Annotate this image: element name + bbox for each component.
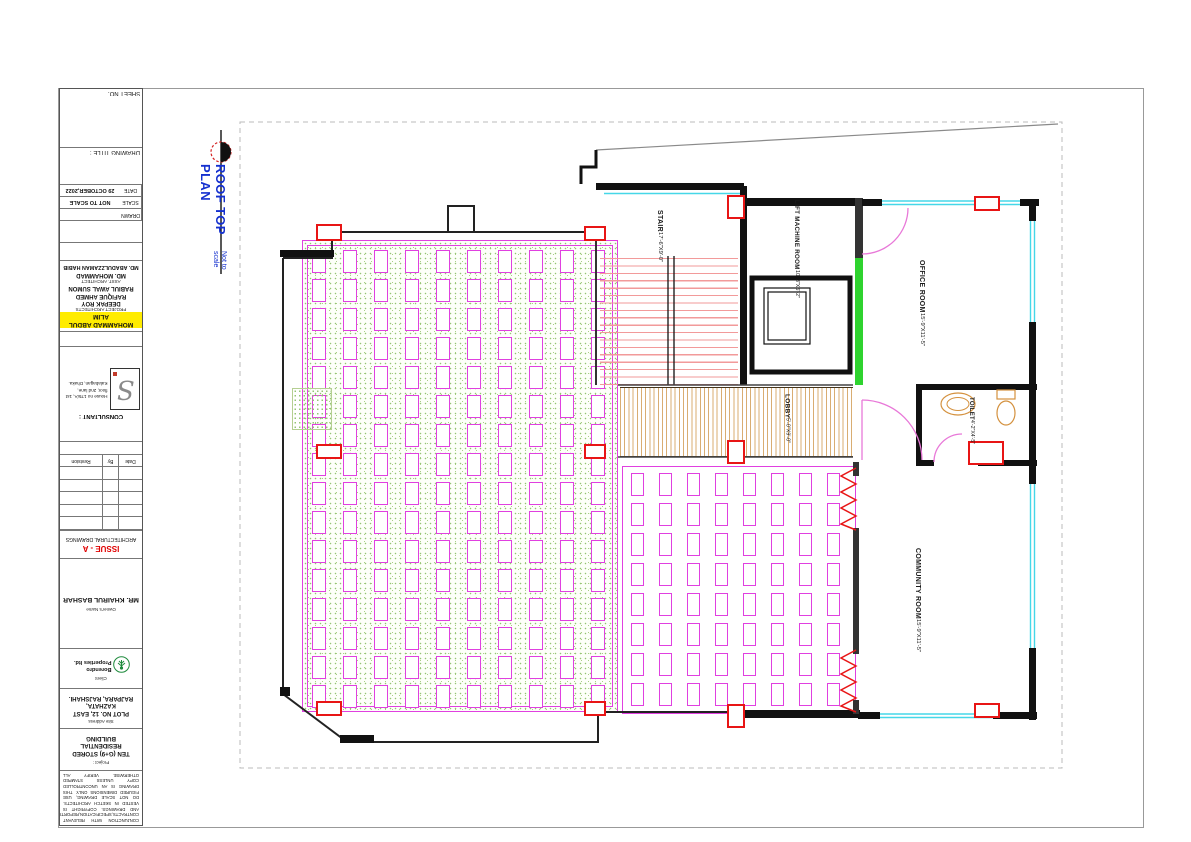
plan-title-text: ROOF TOP PLAN [197,164,227,251]
roof-grid-cell [591,540,605,563]
roof-grid-cell [405,308,419,331]
room-name: STAIR [655,210,663,232]
column-marker [584,226,606,241]
roof-grid-cell [343,482,357,505]
revision-header-row: Date By Revision [60,455,142,468]
project-label: Project : [93,759,110,765]
roof-grid-cell [498,685,512,708]
scale-value: NOT TO SCALE [60,197,120,208]
roof-grid-cell [467,337,481,360]
roof-grid-cell [467,511,481,534]
column-marker [727,704,745,728]
roof-grid-cell [467,395,481,418]
roof-grid-cell [560,308,574,331]
roof-grid-cell [343,627,357,650]
project-name-line2: BUILDING [86,734,116,742]
roof-grid-cell [529,656,543,679]
roof-grid-cell [374,685,388,708]
roof-grid-cell [743,533,756,556]
roof-grid-cell [591,511,605,534]
roof-grid-cell [312,511,326,534]
roof-grid-cell [799,533,812,556]
revision-empty-row [60,493,142,506]
roof-grid-cell [771,563,784,586]
roof-grid-cell [498,540,512,563]
roof-grid-cell [405,453,419,476]
column-marker [974,196,1000,211]
site-label: Site Address [88,718,113,724]
roof-grid-cell [631,503,644,526]
date-value: 29 OCTOBER,2022 [60,185,120,196]
room-dim: 15'-9"X11'-5" [913,619,921,652]
column-marker [584,701,606,716]
roof-grid-cell [659,593,672,616]
roof-grid-cell [405,540,419,563]
roof-grid-cell [715,683,728,706]
roof-grid-cell [405,627,419,650]
roof-grid-cell [560,395,574,418]
asst-architect-label: ASST. ARCHITECT [81,278,120,284]
client-logo-tree-icon [114,656,131,673]
roof-grid-cell [343,250,357,273]
roof-grid-cell [312,598,326,621]
roof-grid-cell [436,540,450,563]
roof-grid-cell [799,623,812,646]
roof-grid-cell [374,540,388,563]
project-name-line1: TEN (G+9) STORED RESIDENTIAL [60,742,142,758]
roof-grid-cell [631,683,644,706]
roof-grid-cell [560,627,574,650]
roof-grid-cell [687,473,700,496]
room-dim: 17'-6"X9'-0" [655,232,663,262]
roof-grid-cell [405,685,419,708]
roof-grid-cell [467,685,481,708]
client-label: Client [95,675,107,681]
client-block: Client Borendro Properties ltd. [60,649,142,689]
roof-grid-cell [405,395,419,418]
sheet-no-cell: SHEET NO. [60,89,142,148]
scale-row: NOT TO SCALE SCALE [60,197,142,209]
roof-grid-cell [529,598,543,621]
roof-grid-cell [771,593,784,616]
roof-grid-cell [743,623,756,646]
roof-grid-cell [498,337,512,360]
roof-grid-cell [827,503,840,526]
room-label-office-room: OFFICE ROOM 15'-9"X11'-5" [917,260,925,355]
roof-grid-cell [467,250,481,273]
roof-grid-cell [405,656,419,679]
roof-grid-cell [743,473,756,496]
roof-grid-cell [405,250,419,273]
roof-grid-cell [560,598,574,621]
roof-grid-cell [374,453,388,476]
roof-grid-cell [799,593,812,616]
roof-grid-cell [687,563,700,586]
roof-grid-cell [631,533,644,556]
roof-grid-cell [498,395,512,418]
roof-grid-cell [799,503,812,526]
roof-grid-cell [659,683,672,706]
roof-grid-cell [436,685,450,708]
roof-grid-cell [771,503,784,526]
roof-grid-cell [374,569,388,592]
roof-grid-cell [436,482,450,505]
roof-grid-cell [560,279,574,302]
project-architect-name: MOHAMMAD ABDUL ALIM [60,312,142,328]
empty-row-3 [60,332,142,347]
roof-grid-cell [467,627,481,650]
roof-grid-cell [715,503,728,526]
roof-grid-cell [312,540,326,563]
drawing-sheet: SHEET NO. DRAWING TITLE : 29 OCTOBER,202… [0,0,1191,842]
roof-grid-cell [498,453,512,476]
roof-grid-cell [687,503,700,526]
roof-grid-cell [771,533,784,556]
roof-grid-cell [687,533,700,556]
roof-grid-cell [529,250,543,273]
room-dim: 5'-0"X9'-0" [783,418,790,443]
roof-grid-cell [715,593,728,616]
revision-col-revision: Revision [60,455,102,468]
roof-grid-cell [343,540,357,563]
owner-label: Owner's Name [86,606,116,612]
architect-name: DEEPAK ROY [81,299,120,307]
roof-grid-cell [467,424,481,447]
roof-grid-cell [498,598,512,621]
roof-grid-cell [498,511,512,534]
roof-grid-cell [467,569,481,592]
roof-grid-cell [529,337,543,360]
revision-empty-row [60,518,142,531]
consultant-logo-glyph: S [117,377,135,403]
roof-grid-cell [498,279,512,302]
roof-grid-cell [467,279,481,302]
owner-block: Owner's Name MR. KHAIRUL BASHAR [60,559,142,649]
roof-grid-cell [529,453,543,476]
roof-grid-cell [436,656,450,679]
roof-grid-cell [405,424,419,447]
architects-block: MOHAMMAD ABDUL ALIM PROJECT ARCHITECTS D… [60,261,142,332]
revision-empty-row [60,468,142,481]
roof-grid-cell [560,569,574,592]
roof-grid-cell [631,623,644,646]
disclaimer-text: THIS DRAWING IS TO BE READ IN CONJUNCTIO… [63,771,139,824]
room-label-community-room: COMMUNITY ROOM 15'-9"X11'-5" [913,548,921,663]
drawn-value [60,209,120,221]
roof-grid-cell [529,685,543,708]
roof-grid-cell [591,656,605,679]
roof-grid-cell [771,683,784,706]
roof-grid-cell [343,569,357,592]
roof-grid-cell [529,279,543,302]
roof-grid-cell [343,453,357,476]
roof-grid-cell [529,366,543,389]
project-block: Project : TEN (G+9) STORED RESIDENTIAL B… [60,729,142,771]
roof-grid-cell [799,563,812,586]
roof-grid-cell [743,563,756,586]
room-name: COMMUNITY ROOM [913,548,921,619]
roof-grid-cell [343,424,357,447]
room-label-stair: STAIR 17'-6"X9'-0" [655,210,663,305]
roof-grid-cell [467,540,481,563]
consultant-label: CONSULTANT : [79,414,123,420]
roof-grid-cell [405,337,419,360]
roof-grid-cell [498,424,512,447]
roof-grid-cell [405,279,419,302]
roof-grid-cell [631,653,644,676]
roof-grid-cell [374,250,388,273]
roof-grid-cell [374,656,388,679]
consultant-logo-mark [114,373,118,377]
roof-grid-cell [436,395,450,418]
roof-grid-cell [312,337,326,360]
issue-code: ISSUE - A [83,544,120,553]
roof-grid-cell [498,627,512,650]
roof-grid-cell [560,656,574,679]
title-block: SHEET NO. DRAWING TITLE : 29 OCTOBER,202… [59,88,143,826]
roof-grid-cell [529,424,543,447]
roof-grid-cell [374,308,388,331]
roof-grid-cell [771,623,784,646]
sheet-no-label: SHEET NO. [108,90,140,96]
roof-grid-cell [436,598,450,621]
roof-grid-cell [591,598,605,621]
roof-grid-cell [715,563,728,586]
room-name: LIFT MACHINE ROOM [793,200,800,270]
consultant-block: CONSULTANT : S House no 175/A, 1st floor… [60,347,142,442]
roof-grid-cell [343,685,357,708]
roof-grid-cell [436,424,450,447]
stair-treads [600,258,738,385]
roof-grid-cell [659,563,672,586]
roof-grid-cell [498,656,512,679]
empty-row-2 [60,243,142,261]
roof-grid-cell [529,482,543,505]
roof-grid-cell [827,653,840,676]
architect-name: RABIUL AWAL SUMON [68,284,133,292]
roof-grid-cell [529,308,543,331]
roof-terrace-grid [622,466,856,714]
roof-grid-cell [405,366,419,389]
asst-architect-name: MD. ABADULZZAMAN HABIB [63,264,138,271]
roof-grid-cell [405,598,419,621]
plan-title: ROOF TOP PLAN Not to scale [197,164,227,280]
roof-grid-cell [498,366,512,389]
roof-grid-cell [827,593,840,616]
roof-grid-cell [374,366,388,389]
roof-grid-cell [560,685,574,708]
roof-grid-cell [312,366,326,389]
owner-name: MR. KHAIRUL BASHAR [63,595,139,603]
roof-grid-cell [374,627,388,650]
empty-row-1 [60,221,142,243]
roof-grid-cell [715,653,728,676]
roof-grid-cell [659,473,672,496]
roof-grid-cell [591,395,605,418]
issue-description: ARCHITECTURAL DRAWINGS [66,536,136,542]
room-name: OFFICE ROOM [917,260,925,313]
roof-grid-cell [436,250,450,273]
roof-grid-cell [312,279,326,302]
date-row: 29 OCTOBER,2022 DATE [60,185,142,197]
roof-grid-cell [467,656,481,679]
roof-grid-cell [374,279,388,302]
roof-grid-cell [591,569,605,592]
room-label-toilet: TOILET 4'-2"X4'-5" [967,397,974,455]
drawn-label: DRAWN [120,209,142,221]
roof-grid-cell [436,366,450,389]
scale-label: SCALE [120,197,142,208]
column-marker [584,444,606,459]
roof-grid-cell [436,308,450,331]
consultant-logo: S [111,369,141,411]
roof-grid-cell [529,511,543,534]
roof-grid-cell [436,511,450,534]
roof-grid-cell [405,482,419,505]
roof-grid-cell [827,683,840,706]
roof-grid-cell [743,653,756,676]
roof-grid-cell [827,563,840,586]
roof-grid-cell [498,482,512,505]
roof-grid-cell [374,598,388,621]
roof-grid-cell [560,482,574,505]
roof-grid-cell [498,308,512,331]
roof-grid-cell [343,511,357,534]
roof-grid-cell [312,656,326,679]
roof-grid-cell [827,473,840,496]
column-marker [727,440,745,464]
roof-grid-cell [591,482,605,505]
architect-name: RAFIQUE AHMED [76,291,126,299]
roof-grid-cell [467,308,481,331]
room-name: LOBBY [783,394,790,418]
roof-grid-cell [659,623,672,646]
roof-grid-cell [560,424,574,447]
roof-grid-cell [405,511,419,534]
roof-grid-cell [343,656,357,679]
roof-grid-cell [827,623,840,646]
roof-grid-cell [312,569,326,592]
room-name: TOILET [967,397,974,420]
room-dim: 15'-9"X11'-5" [917,313,925,346]
roof-grid-cell [631,563,644,586]
issue-block: ISSUE - A ARCHITECTURAL DRAWINGS [60,531,142,559]
revision-table: Date By Revision [60,455,142,531]
column-marker [316,224,342,241]
roof-grid-cell [560,453,574,476]
roof-grid-cell [374,395,388,418]
consultant-address: House no 175/A, 1st floor, 2nd lane, Kal… [64,380,108,399]
room-label-lift-machine-room: LIFT MACHINE ROOM 10'-3"X6'-2" [793,200,800,320]
roof-grid-cell [560,337,574,360]
roof-grid-cell [343,308,357,331]
roof-grid-cell [771,473,784,496]
revision-col-by: By [102,455,118,468]
roof-grid-cell [659,533,672,556]
roof-grid-cell [715,533,728,556]
date-label: DATE [120,185,142,196]
roof-grid-cell [436,453,450,476]
roof-grid-cell [436,627,450,650]
roof-grid-cell [560,540,574,563]
roof-grid-cell [374,337,388,360]
roof-grid-cell [743,683,756,706]
roof-grid-cell [498,569,512,592]
roof-grid-cell [374,424,388,447]
roof-grid-cell [529,540,543,563]
roof-grid-cell [436,569,450,592]
roof-grid-cell [374,482,388,505]
room-label-lobby: LOBBY 5'-0"X9'-0" [783,394,790,452]
roof-grid-cell [312,482,326,505]
roof-grid-cell [799,473,812,496]
roof-grid-cell [591,627,605,650]
roof-grid-cell [405,569,419,592]
roof-grid-cell [631,593,644,616]
roof-grid-cell [436,337,450,360]
roof-grid-cell [343,366,357,389]
roof-grid-cell [827,533,840,556]
roof-grid-cell [343,337,357,360]
roof-grid-cell [659,653,672,676]
roof-grid-cell [799,653,812,676]
roof-grid-cell [467,598,481,621]
site-block: Site Address PLOT NO. 12, EAST KAZHATA, … [60,689,142,729]
roof-grid-cell [529,395,543,418]
roof-grid-cell [312,250,326,273]
roof-grid-cell [529,627,543,650]
column-marker [727,195,745,219]
drawing-title-cell: DRAWING TITLE : [60,148,142,185]
column-marker [974,703,1000,718]
room-dim: 4'-2"X4'-5" [967,420,974,444]
small-planter [292,388,332,430]
project-architect-label: PROJECT ARCHITECTS [76,306,127,312]
roof-grid-cell [687,623,700,646]
plan-subtitle-text: Not to scale [197,251,227,280]
roof-grid-cell [743,503,756,526]
roof-grid-cell [467,453,481,476]
roof-grid-cell [529,569,543,592]
roof-grid-cell [312,308,326,331]
drawing-title-label: DRAWING TITLE : [90,149,140,155]
roof-grid-cell [498,250,512,273]
asst-architect-name: MD. MOHAMMAD [76,270,126,278]
revision-empty-row [60,505,142,518]
roof-grid-cell [687,683,700,706]
client-name: Borendro Properties ltd. [72,658,112,672]
column-marker [316,444,342,459]
roof-grid-cell [560,366,574,389]
revision-empty-row [60,480,142,493]
roof-grid-cell [715,473,728,496]
roof-grid-cell [467,482,481,505]
roof-grid-cell [687,593,700,616]
site-address-line2: RAJPARA, RAJSHAHI. [69,693,133,701]
roof-grid-cell [631,473,644,496]
roof-grid-cell [436,279,450,302]
disclaimer-block: THIS DRAWING IS TO BE READ IN CONJUNCTIO… [60,771,142,824]
roof-grid-cell [659,503,672,526]
drawn-row: DRAWN [60,209,142,221]
roof-grid-cell [343,279,357,302]
roof-grid-cell [467,366,481,389]
revision-col-date: Date [118,455,142,468]
site-address-line1: PLOT NO. 12, EAST KAZHATA, [60,701,142,716]
empty-row-4 [60,442,142,455]
column-marker [316,701,342,716]
roof-grid-cell [687,653,700,676]
